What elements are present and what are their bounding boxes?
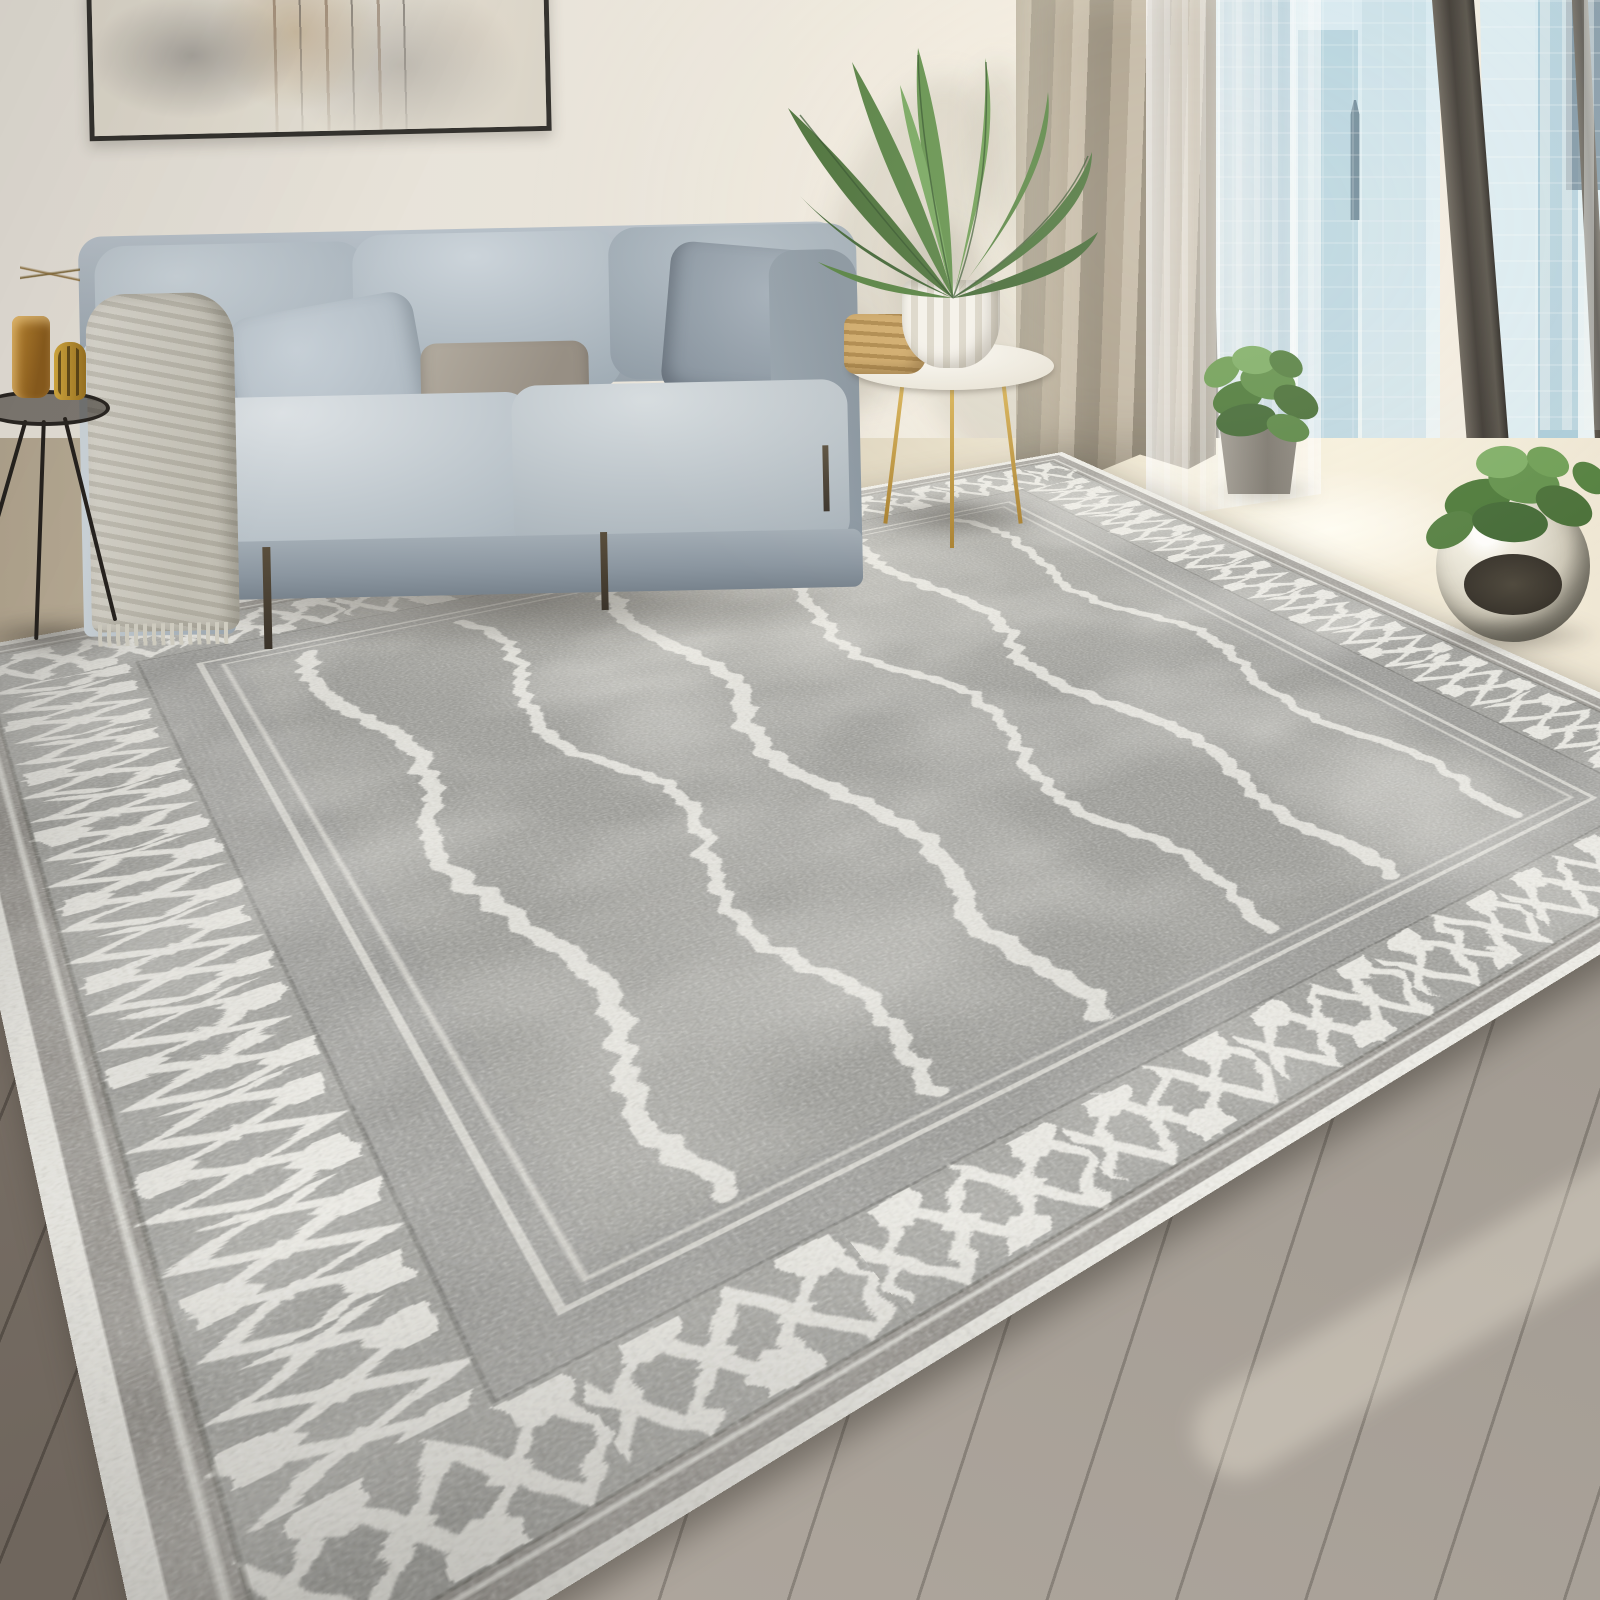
sofa (55, 207, 864, 664)
table-leg (950, 388, 954, 548)
table-leg (0, 420, 28, 629)
table-leg (883, 382, 904, 523)
seat-cushion-left (197, 392, 534, 561)
living-room-photo (0, 0, 1600, 1600)
glass-bowl-vase (1436, 490, 1590, 642)
dried-stems (20, 218, 80, 328)
table-leg (1001, 382, 1022, 523)
amber-vase (12, 316, 50, 398)
table-leg (63, 417, 118, 622)
table-leg (34, 420, 46, 640)
wire-side-table (0, 368, 132, 658)
gold-lantern (54, 342, 86, 400)
stone-pot (1216, 426, 1302, 494)
soil (1464, 554, 1563, 615)
seat-cushion-right (511, 379, 850, 552)
white-ribbed-pot (902, 280, 1000, 368)
